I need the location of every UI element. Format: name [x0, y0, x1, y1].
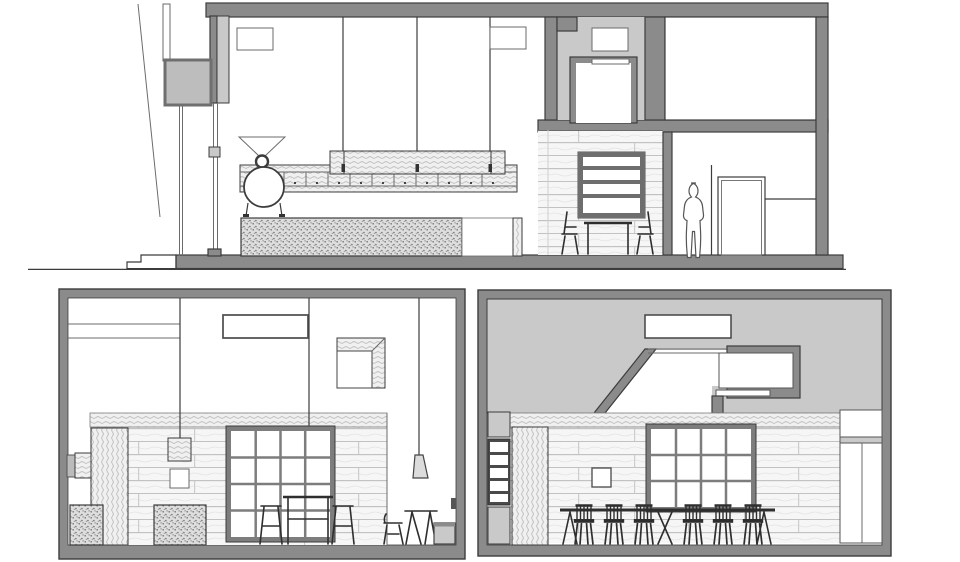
planter-icon: [154, 505, 206, 545]
wall-light-icon: [490, 27, 526, 49]
suspended-shelf: [330, 151, 505, 174]
wall-shelving: [578, 152, 645, 218]
planter-icon: [70, 505, 103, 545]
top-section: [28, 3, 846, 269]
door-base: [208, 249, 221, 256]
counter-opening: [462, 218, 513, 256]
sign-box: [165, 60, 211, 105]
ceiling-rods: [343, 17, 490, 152]
door-icon: [718, 177, 765, 255]
glazing-connector: [209, 147, 220, 157]
roof-slab: [206, 3, 828, 17]
floor-slab: [176, 255, 843, 269]
entry-steps: [127, 255, 176, 269]
stair-void-ceiling: [487, 299, 882, 413]
sign-cable: [138, 4, 160, 217]
ceiling-light-icon: [223, 315, 308, 338]
door-area: [840, 410, 882, 543]
wall-box: [67, 453, 91, 478]
door-latch: [451, 498, 456, 509]
back-room: [663, 132, 816, 258]
section-drawing: [0, 0, 960, 562]
bar-counter: [241, 218, 522, 256]
coffee-roaster: [239, 137, 285, 217]
ceiling-light-icon: [645, 315, 731, 338]
textured-column: [512, 427, 548, 545]
bench-icon: [434, 523, 455, 544]
bottom-right-section: [478, 290, 891, 556]
bottom-left-section: [59, 289, 465, 559]
hanging-sign: [138, 4, 211, 256]
person-silhouette-icon: [683, 183, 703, 258]
stair-core: [545, 17, 665, 123]
wall-art-square: [592, 468, 611, 487]
wall-light-icon: [237, 28, 273, 50]
storefront: [208, 16, 229, 256]
wall-shelf-unit: [488, 412, 510, 544]
shadow-box-art: [337, 338, 385, 388]
roaster-ring: [256, 156, 268, 168]
roaster-hopper: [239, 137, 285, 156]
roaster-drum: [244, 167, 284, 207]
stair-door: [576, 63, 631, 123]
grid-window: [646, 424, 756, 512]
stair-window: [592, 28, 628, 51]
